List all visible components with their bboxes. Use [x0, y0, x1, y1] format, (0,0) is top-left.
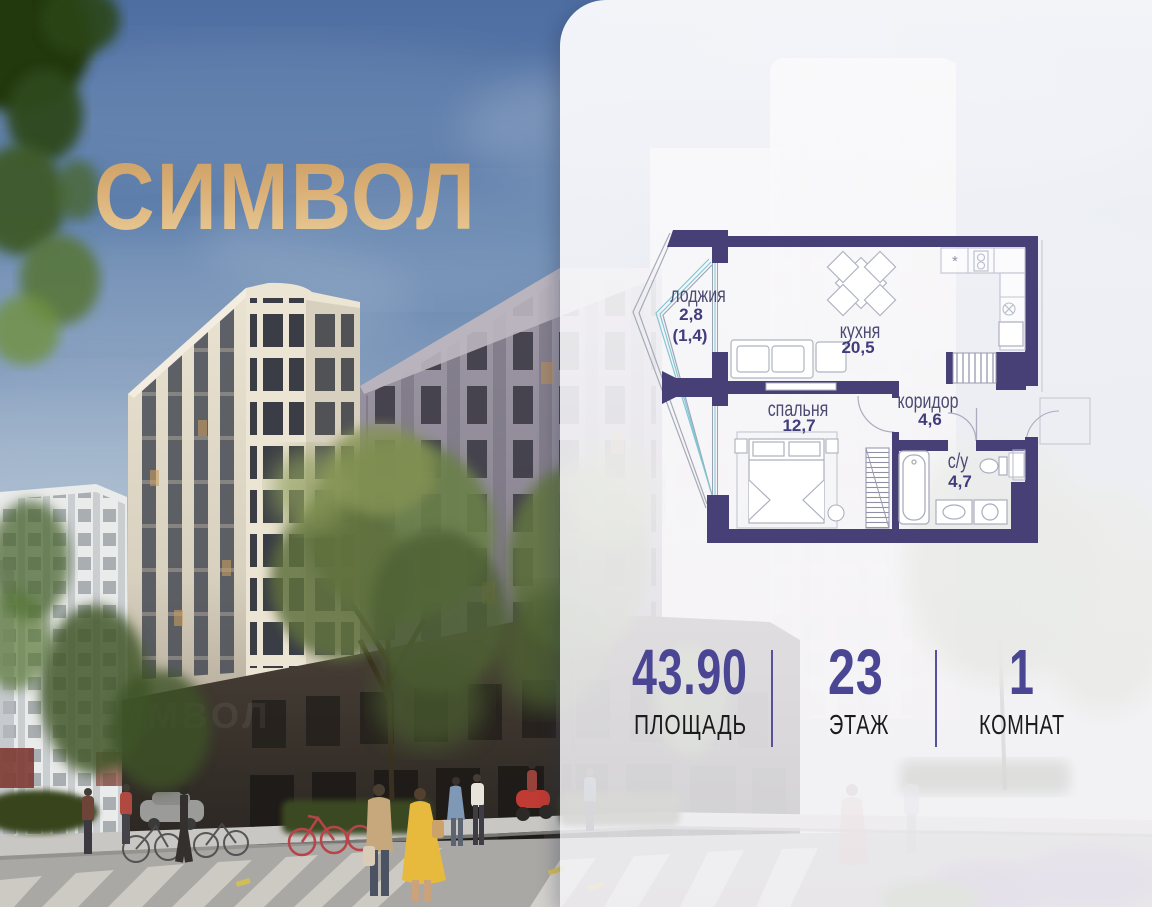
- svg-text:*: *: [952, 253, 958, 270]
